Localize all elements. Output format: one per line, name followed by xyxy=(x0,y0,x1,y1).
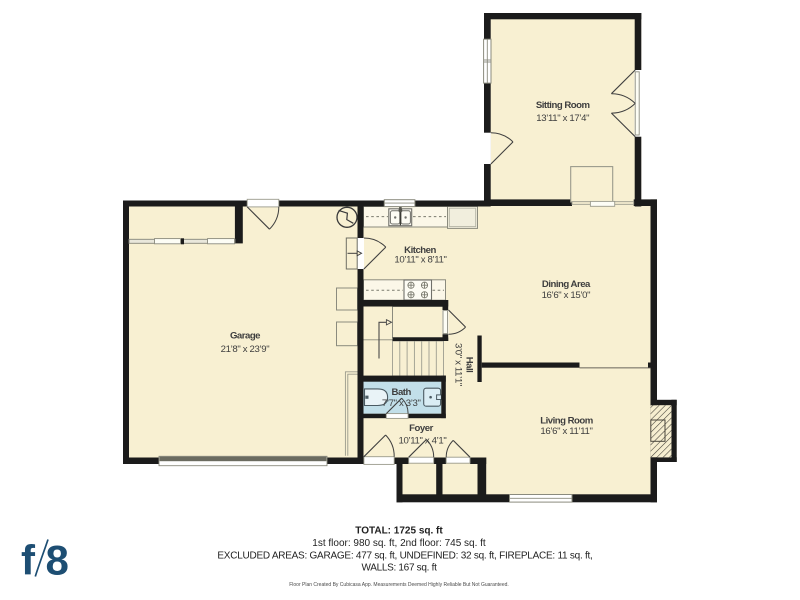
svg-text:8: 8 xyxy=(46,537,69,584)
svg-text:EXCLUDED AREAS: GARAGE: 477 sq: EXCLUDED AREAS: GARAGE: 477 sq. ft, UNDE… xyxy=(217,551,592,562)
svg-text:Floor Plan Created By Cubicasa: Floor Plan Created By Cubicasa App. Meas… xyxy=(289,582,509,588)
svg-text:3’0" x 11’1": 3’0" x 11’1" xyxy=(453,343,464,386)
svg-text:1st floor: 980 sq. ft, 2nd flo: 1st floor: 980 sq. ft, 2nd floor: 745 sq… xyxy=(312,538,486,549)
svg-text:Hall: Hall xyxy=(464,357,475,373)
svg-text:Sitting Room: Sitting Room xyxy=(536,100,590,111)
svg-text:16’6" x 15’0": 16’6" x 15’0" xyxy=(542,290,591,301)
svg-text:16’6" x 11’11": 16’6" x 11’11" xyxy=(540,426,592,437)
svg-text:WALLS: 167 sq. ft: WALLS: 167 sq. ft xyxy=(361,563,437,574)
svg-text:7’7" x 3’3": 7’7" x 3’3" xyxy=(382,398,421,409)
svg-text:Garage: Garage xyxy=(230,331,260,342)
svg-text:Dining Area: Dining Area xyxy=(542,279,591,290)
svg-text:TOTAL: 1725 sq. ft: TOTAL: 1725 sq. ft xyxy=(355,525,443,536)
svg-text:21’8" x 23’9": 21’8" x 23’9" xyxy=(221,344,270,355)
svg-text:Foyer: Foyer xyxy=(409,423,433,434)
svg-text:f: f xyxy=(21,537,36,584)
svg-text:13’11" x 17’4": 13’11" x 17’4" xyxy=(536,113,589,124)
svg-text:10’11" x 4’1": 10’11" x 4’1" xyxy=(399,436,447,447)
svg-text:10’11" x 8’11": 10’11" x 8’11" xyxy=(394,254,446,265)
svg-text:Bath: Bath xyxy=(392,387,412,398)
